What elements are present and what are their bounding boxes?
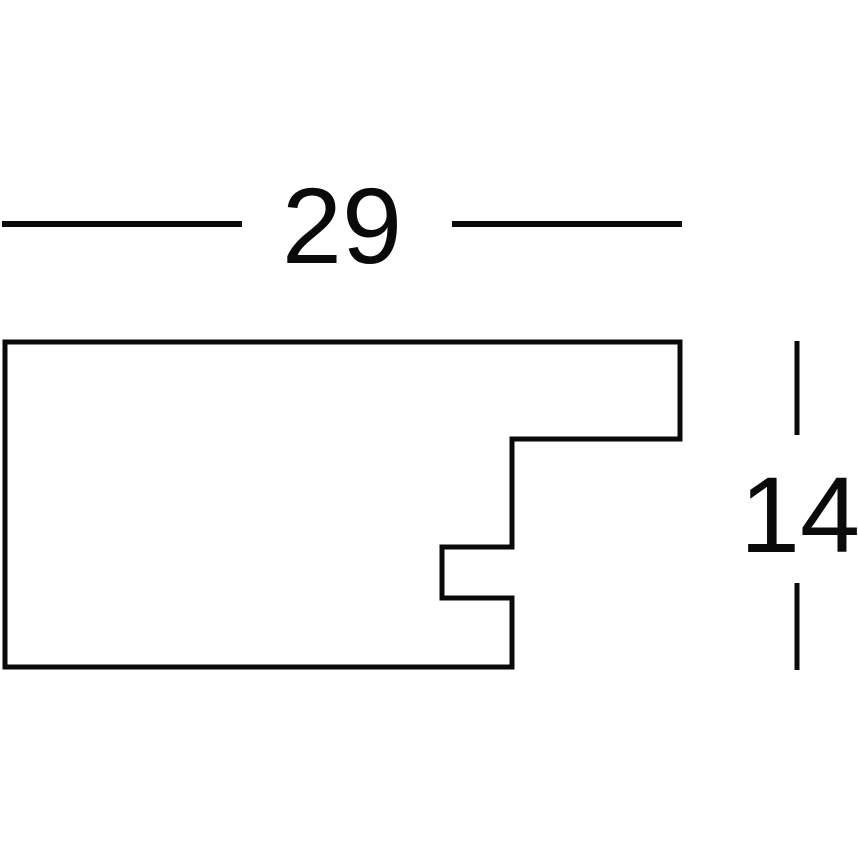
width-dim-label: 29 bbox=[282, 165, 402, 286]
technical-drawing-canvas: 29 14 bbox=[0, 0, 858, 858]
moulding-profile-drawing: 29 14 bbox=[0, 0, 858, 858]
height-dim-label: 14 bbox=[740, 454, 858, 575]
profile-outline bbox=[5, 342, 680, 667]
